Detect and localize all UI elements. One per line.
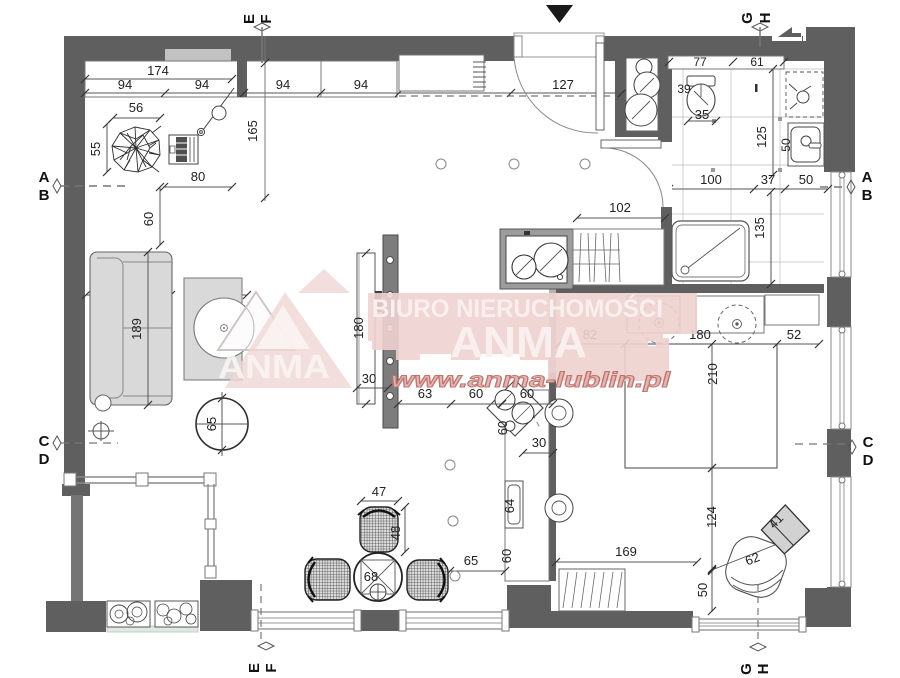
svg-text:H: H — [755, 664, 772, 675]
svg-text:F: F — [258, 14, 275, 23]
svg-text:37: 37 — [761, 172, 775, 187]
svg-text:C: C — [39, 433, 50, 450]
svg-text:94: 94 — [354, 77, 368, 92]
svg-text:61: 61 — [750, 55, 764, 69]
svg-text:50: 50 — [799, 172, 813, 187]
svg-text:189: 189 — [129, 318, 144, 340]
svg-text:35: 35 — [695, 107, 709, 122]
svg-text:124: 124 — [704, 506, 719, 528]
svg-text:100: 100 — [700, 172, 722, 187]
svg-text:E: E — [246, 663, 263, 673]
svg-text:65: 65 — [204, 417, 219, 431]
svg-text:60: 60 — [141, 212, 156, 226]
svg-text:80: 80 — [191, 169, 205, 184]
svg-text:C: C — [863, 434, 874, 451]
svg-text:125: 125 — [754, 126, 769, 148]
svg-text:127: 127 — [552, 77, 574, 92]
svg-text:ANMA: ANMA — [218, 348, 330, 385]
svg-text:D: D — [863, 452, 874, 469]
svg-text:ANMA: ANMA — [450, 318, 587, 367]
svg-text:174: 174 — [147, 63, 169, 78]
svg-text:180: 180 — [351, 317, 366, 339]
svg-text:56: 56 — [129, 100, 143, 115]
svg-text:47: 47 — [372, 484, 386, 499]
svg-text:165: 165 — [245, 120, 260, 142]
svg-text:D: D — [39, 451, 50, 468]
svg-text:G: G — [739, 12, 756, 24]
svg-text:169: 169 — [615, 544, 637, 559]
svg-text:50: 50 — [695, 583, 710, 597]
svg-text:52: 52 — [787, 327, 801, 342]
svg-text:30: 30 — [532, 435, 546, 450]
svg-text:G: G — [738, 663, 755, 675]
svg-text:94: 94 — [195, 77, 209, 92]
svg-text:102: 102 — [609, 200, 631, 215]
svg-text:30: 30 — [362, 371, 376, 386]
svg-text:60: 60 — [499, 549, 514, 563]
svg-text:60: 60 — [495, 421, 510, 435]
svg-text:48: 48 — [388, 526, 403, 540]
svg-text:B: B — [39, 187, 50, 204]
svg-text:94: 94 — [276, 77, 290, 92]
svg-text:A: A — [39, 169, 50, 186]
svg-text:E: E — [241, 14, 258, 24]
svg-text:135: 135 — [752, 217, 767, 239]
svg-text:A: A — [862, 169, 873, 186]
svg-text:F: F — [263, 663, 280, 672]
svg-text:68: 68 — [364, 569, 378, 584]
svg-text:64: 64 — [502, 499, 517, 513]
svg-text:55: 55 — [88, 142, 103, 156]
svg-text:65: 65 — [464, 553, 478, 568]
svg-text:50: 50 — [779, 138, 793, 152]
svg-text:www.anma-lublin.pl: www.anma-lublin.pl — [391, 369, 672, 392]
svg-text:39: 39 — [677, 82, 691, 96]
svg-text:H: H — [757, 13, 774, 24]
svg-text:77: 77 — [693, 55, 707, 69]
svg-text:94: 94 — [118, 77, 132, 92]
svg-text:210: 210 — [705, 363, 720, 385]
svg-text:B: B — [862, 187, 873, 204]
